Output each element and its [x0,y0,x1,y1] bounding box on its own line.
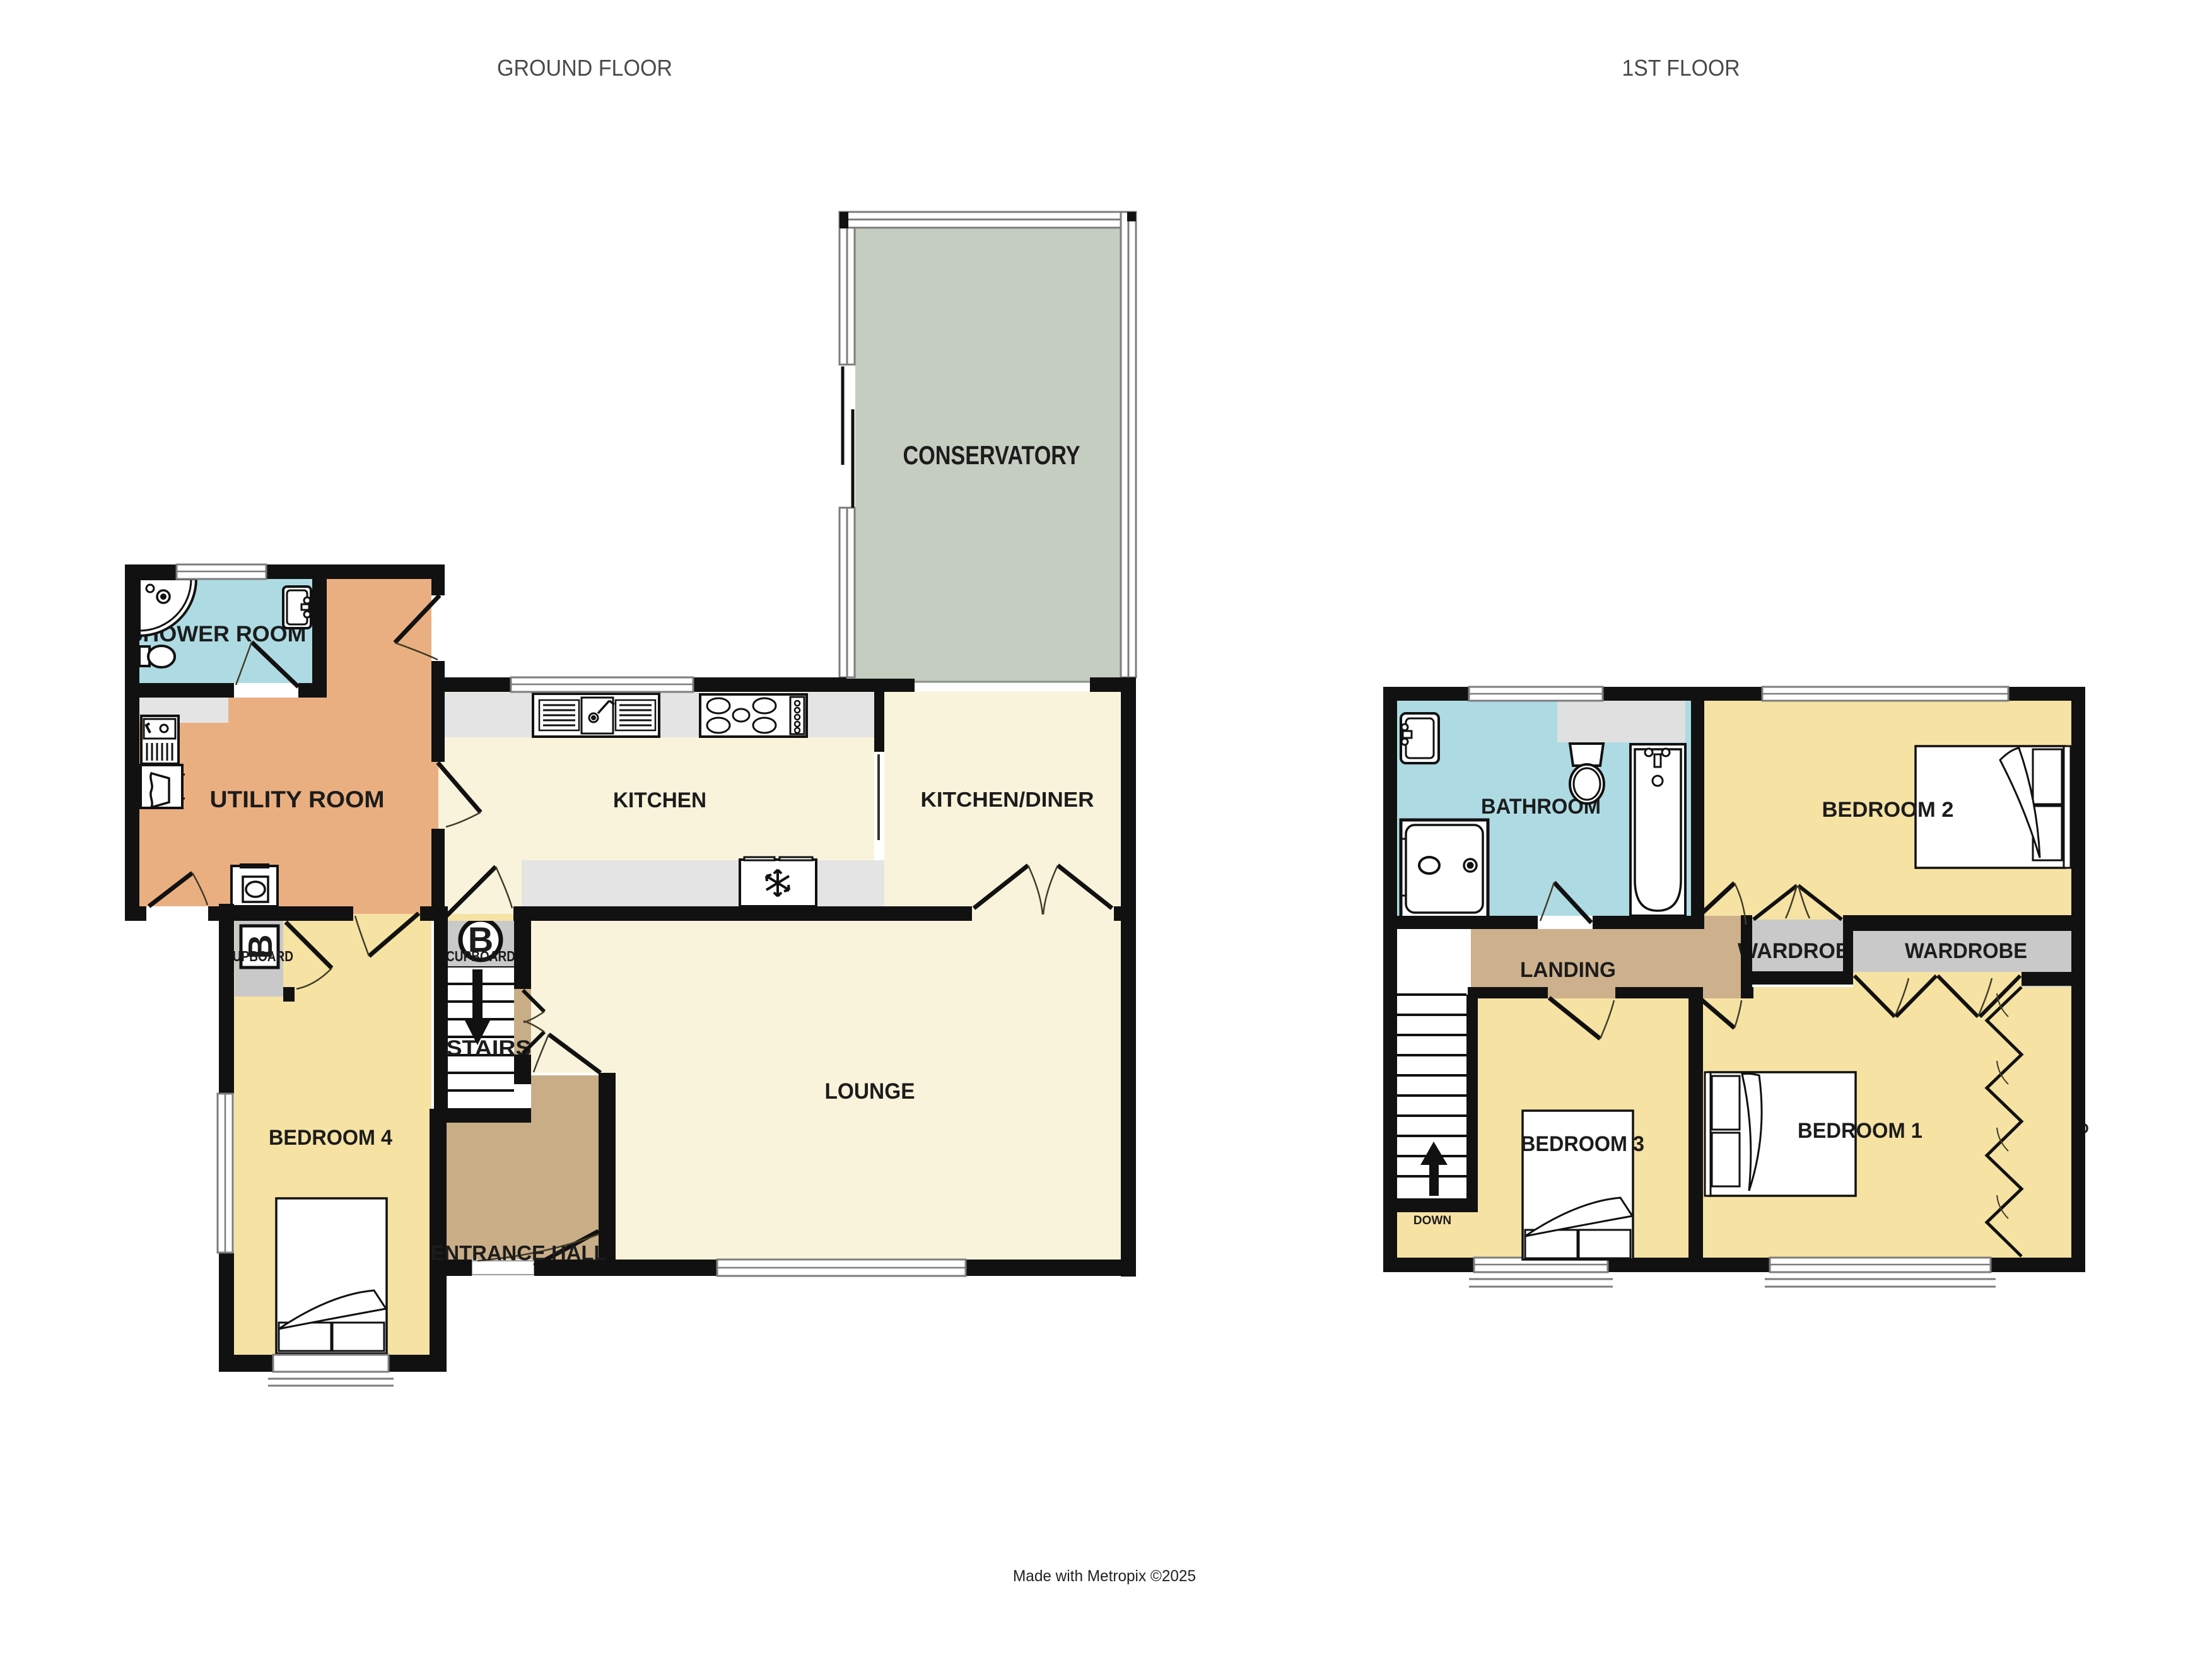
svg-text:KITCHEN: KITCHEN [613,788,706,812]
svg-text:DOWN: DOWN [1413,1214,1451,1227]
svg-text:ENTRANCE HALL: ENTRANCE HALL [431,1241,607,1265]
svg-text:KITCHEN/DINER: KITCHEN/DINER [921,788,1094,811]
svg-text:Made with Metropix ©2025: Made with Metropix ©2025 [1013,1567,1196,1585]
svg-text:WARDROBE: WARDROBE [1905,939,2027,963]
svg-text:UTILITY ROOM: UTILITY ROOM [210,786,385,812]
svg-text:CONSERVATORY: CONSERVATORY [903,440,1080,470]
svg-text:BEDROOM 4: BEDROOM 4 [269,1126,392,1150]
svg-text:BEDROOM 3: BEDROOM 3 [1521,1132,1644,1156]
svg-text:CUPBOARD: CUPBOARD [224,948,293,964]
svg-text:BEDROOM 1: BEDROOM 1 [1798,1119,1922,1143]
svg-text:BEDROOM 2: BEDROOM 2 [1822,798,1954,822]
svg-text:LOUNGE: LOUNGE [825,1079,915,1104]
svg-text:LANDING: LANDING [1520,958,1616,982]
svg-text:GROUND FLOOR: GROUND FLOOR [497,55,672,81]
svg-text:1ST FLOOR: 1ST FLOOR [1622,55,1740,81]
svg-text:CUPBOARD: CUPBOARD [446,948,515,964]
